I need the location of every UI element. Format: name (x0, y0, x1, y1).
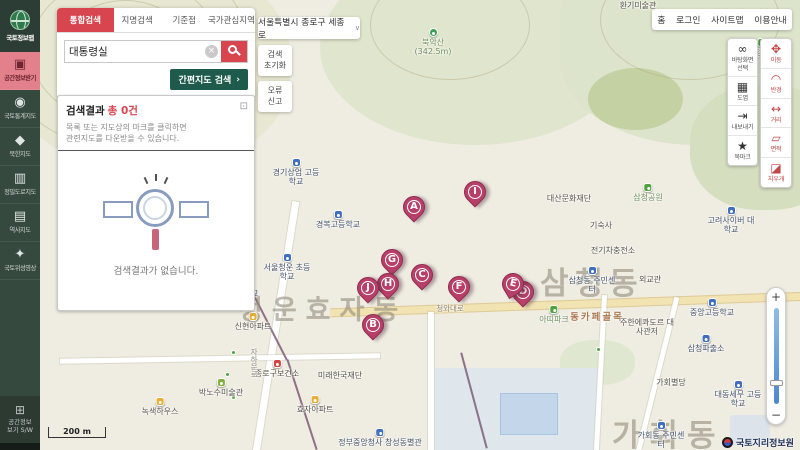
zoom-control: + − (766, 287, 786, 425)
map-poi: 아띠파크 (539, 305, 568, 324)
quick-map-row: 간편지도 검색 › (57, 63, 255, 98)
map-poi: 녹색하우스 (142, 397, 179, 416)
sidebar-spacer (0, 280, 40, 396)
apartment-icon (311, 395, 320, 404)
map-poi: 동카페골목 (570, 313, 624, 324)
map-poi: 외교관 (639, 275, 661, 284)
map-tools-right: ✥이동 ◠반경 ↔거리 ▱면적 ◪지우개 (760, 38, 792, 188)
eraser-icon: ◪ (770, 162, 781, 174)
search-input-row: × (64, 40, 248, 63)
poi-dot (596, 347, 601, 352)
pan-move-button[interactable]: ✥이동 (761, 39, 791, 69)
community-center-icon (588, 266, 597, 275)
error-report-button[interactable]: 오류 신고 (258, 81, 292, 112)
map-poi: 기숙사 (590, 221, 612, 230)
map-poi: 북악산 (342.5m) (409, 28, 457, 56)
north-korea-icon: ◆ (15, 134, 25, 147)
star-icon: ★ (737, 140, 748, 152)
results-count: 총 0건 (108, 105, 138, 117)
zoom-slider-handle[interactable] (770, 380, 783, 386)
empty-results-text: 검색결과가 없습니다. (58, 263, 254, 277)
illustration-bar-left (103, 201, 133, 218)
results-hint: 목록 또는 지도상의 마크를 클릭하면 관련지도를 다운받을 수 있습니다. (66, 122, 246, 144)
map-poi: 대산문화재단 (547, 194, 591, 203)
logo-text: 국토정보맵 (6, 32, 33, 42)
tab-control-point[interactable]: 기준점 (161, 8, 208, 32)
empty-results-illustration (101, 177, 211, 255)
health-center-icon (272, 359, 281, 368)
map-poi: 중앙고등학교 (690, 298, 734, 317)
sidebar-item-history-map[interactable]: ▤ 역사지도 (0, 204, 40, 242)
map-poi: 가회별당 (656, 378, 685, 387)
distance-measure-button[interactable]: ↔거리 (761, 99, 791, 129)
map-tools-left: ∞바탕화면 선택 ▦도엽 ⇥내보내기 ★북마크 (727, 38, 758, 166)
map-poi: 전기차충전소 (591, 246, 635, 255)
magnifier-handle (152, 229, 159, 250)
school-icon (333, 210, 342, 219)
trail-dot (225, 372, 230, 377)
map-marker-g[interactable]: G (381, 249, 403, 271)
nav-sitemap[interactable]: 사이트맵 (711, 13, 743, 26)
magnifier-lens-icon (136, 189, 174, 227)
road-icon: ▥ (14, 172, 26, 185)
park-icon (643, 183, 652, 192)
tab-place-name-search[interactable]: 지명검색 (114, 8, 161, 32)
palace-building (500, 393, 558, 435)
museum-icon (216, 378, 225, 387)
community-center-icon (657, 421, 666, 430)
region-dropdown[interactable]: 서울특별시 종로구 세종로 ∨ (258, 17, 360, 39)
police-icon (702, 334, 711, 343)
map-poi: 종로구보건소 (255, 359, 299, 378)
map-marker-i[interactable]: I (464, 181, 486, 203)
protractor-icon: ◠ (771, 73, 781, 85)
satellite-icon: ✦ (15, 248, 26, 261)
map-attribution: 국토지리정보원 (722, 436, 794, 449)
map-poi: 효자아파트 (297, 395, 334, 414)
map-marker-c[interactable]: C (411, 264, 433, 286)
map-poi: 대동세무 고등학교 (714, 380, 762, 408)
area-icon: ▱ (771, 132, 780, 144)
zoom-slider-track[interactable] (774, 308, 779, 404)
expand-panel-icon[interactable]: ⊡ (240, 101, 248, 112)
arrow-right-icon: › (236, 75, 240, 85)
map-poi: 삼청공원 (633, 183, 662, 202)
map-poi: 경기상업 고등학교 (272, 158, 320, 186)
park-icon (549, 305, 558, 314)
map-poi: 정부중앙청사 창성동별관 (338, 428, 422, 447)
simple-map-search-button[interactable]: 간편지도 검색 › (170, 69, 248, 90)
grid-icon: ▦ (737, 81, 748, 93)
government-icon (375, 428, 384, 437)
results-header: 검색결과총 0건 ⊡ 목록 또는 지도상의 마크를 클릭하면 관련지도를 다운받… (58, 96, 254, 151)
search-input[interactable] (65, 41, 205, 62)
map-poi: 가회동 주민센터 (637, 421, 685, 449)
sidebar-logo[interactable]: 국토정보맵 (0, 0, 40, 52)
results-title: 검색결과 (66, 105, 105, 117)
background-select-button[interactable]: ∞바탕화면 선택 (728, 39, 757, 77)
map-poi: 미래한국재단 (318, 371, 362, 380)
map-poi: 신현아파트 (235, 312, 272, 331)
map-poi: 환기미술관 (620, 1, 657, 10)
sidebar: 국토정보맵 ▣ 공간정보받기 ◉ 국토통계지도 ◆ 북한지도 ▥ 정밀도로지도 … (0, 0, 40, 450)
radius-measure-button[interactable]: ◠반경 (761, 69, 791, 99)
sidebar-item-north-korea-map[interactable]: ◆ 북한지도 (0, 128, 40, 166)
school-icon (292, 158, 301, 167)
search-reset-button[interactable]: 검색 초기화 (258, 45, 292, 76)
map-scale-bar: 200 m (48, 427, 106, 438)
app-window: 청운효자동 삼청동 가회동 환기미술관 북악산 (342.5m) 삼청공원 경기… (0, 0, 800, 450)
export-button[interactable]: ⇥내보내기 (728, 106, 757, 136)
magnifier-icon (228, 45, 237, 54)
sidebar-item-precision-road-map[interactable]: ▥ 정밀도로지도 (0, 166, 40, 204)
area-measure-button[interactable]: ▱면적 (761, 128, 791, 158)
binoculars-icon: ∞ (738, 43, 748, 55)
mountain-icon (429, 28, 438, 37)
map-marker-b[interactable]: B (362, 314, 384, 336)
ruler-icon: ↔ (771, 103, 781, 115)
map-marker-h[interactable]: H (377, 273, 399, 295)
zoom-in-button[interactable]: + (771, 288, 781, 306)
map-poi: 박노수미술관 (199, 378, 243, 397)
bookmark-button[interactable]: ★북마크 (728, 136, 757, 165)
school-icon (707, 298, 716, 307)
map-poi: 삼청동 주민센터 (568, 266, 616, 294)
sidebar-footer-strip (0, 443, 40, 450)
move-icon: ✥ (771, 43, 781, 55)
sidebar-item-statistics-map[interactable]: ◉ 국토통계지도 (0, 90, 40, 128)
apartment-icon (249, 312, 258, 321)
map-sheet-button[interactable]: ▦도엽 (728, 77, 757, 107)
sidebar-item-spatial-data-download[interactable]: ▣ 공간정보받기 (0, 52, 40, 90)
map-poi: 고려사이버 대학교 (707, 206, 755, 234)
road (428, 312, 434, 450)
map-poi: 삼청파출소 (688, 334, 725, 353)
nav-home[interactable]: 홈 (657, 13, 665, 26)
search-results-panel: 검색결과총 0건 ⊡ 목록 또는 지도상의 마크를 클릭하면 관련지도를 다운받… (57, 95, 255, 311)
road-label: 자하문로 (249, 348, 258, 378)
school-icon (283, 253, 292, 262)
school-icon (734, 380, 743, 389)
tab-integrated-search[interactable]: 통합검색 (57, 8, 114, 32)
map-marker-j[interactable]: J (357, 277, 379, 299)
trail-dot (231, 350, 236, 355)
eraser-button[interactable]: ◪지우개 (761, 158, 791, 187)
top-navigation: 홈 로그인 사이트맵 이용안내 (652, 9, 792, 30)
road-label: 청와대로 (436, 305, 464, 314)
download-map-icon: ▣ (14, 58, 26, 71)
tab-national-interest-area[interactable]: 국가관심지역 (208, 8, 255, 32)
map-poi: 주한에콰도르 대사관저 (618, 318, 676, 336)
nav-guide[interactable]: 이용안내 (754, 13, 786, 26)
school-icon (727, 206, 736, 215)
clear-input-icon[interactable]: × (205, 45, 218, 58)
search-button[interactable] (221, 41, 247, 62)
sidebar-item-sw-viewer[interactable]: ⊞ 공간정보 보기 S/W (0, 396, 40, 443)
map-poi: 경복고등학교 (316, 210, 360, 229)
map-marker-a[interactable]: A (403, 196, 425, 218)
scroll-icon: ▤ (14, 210, 26, 223)
zoom-out-button[interactable]: − (771, 406, 781, 424)
road (60, 353, 380, 364)
illustration-bar-right (179, 201, 209, 218)
export-icon: ⇥ (737, 110, 747, 122)
ngii-logo-icon (722, 437, 733, 448)
search-tabs: 통합검색 지명검색 기준점 국가관심지역 (57, 8, 255, 33)
search-panel: 통합검색 지명검색 기준점 국가관심지역 × 간편지도 검색 › (57, 8, 255, 98)
chevron-down-icon: ∨ (355, 24, 360, 32)
nav-login[interactable]: 로그인 (676, 13, 700, 26)
pin-icon: ◉ (14, 96, 25, 109)
globe-logo-icon (10, 10, 30, 30)
apartment-icon (156, 397, 165, 406)
software-icon: ⊞ (15, 403, 25, 417)
sidebar-item-satellite-imagery[interactable]: ✦ 국토위성영상 (0, 242, 40, 280)
map-marker-f[interactable]: F (448, 276, 470, 298)
map-poi: 서울청운 초등학교 (263, 253, 311, 281)
